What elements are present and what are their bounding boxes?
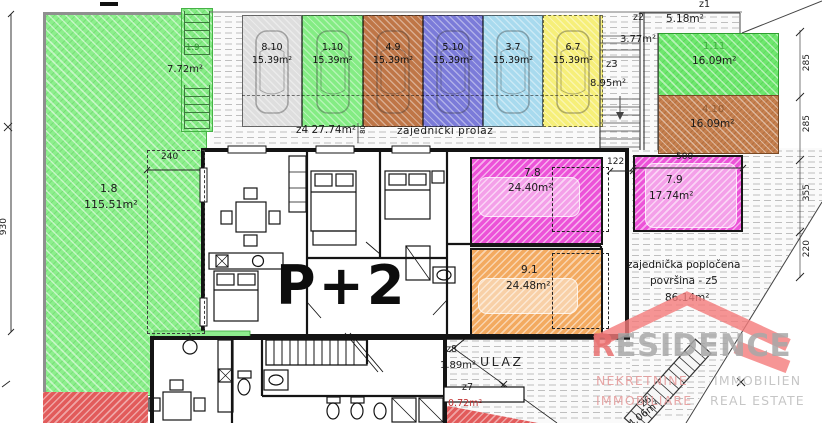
plot-4-10-id-label: 4.10 [702,104,724,115]
strip-1-9-id-label: 1.9 [186,44,200,53]
tagline-real-estate: REAL ESTATE [710,394,805,408]
z1-id-label: z1 [699,0,710,10]
dim-285b-label: 285 [803,115,813,132]
dim-500-label: 500 [676,153,693,163]
plot-1-11-id-label: 1.11 [703,41,725,52]
tagline-immobiliare: IMMOBILIARE [596,394,692,408]
terrace-7-8-id-label: 7.8 [524,168,541,180]
z3-id-label: z3 [606,59,618,70]
z8-id-label: z8 [446,345,457,355]
residence-brand: RESIDENCE [591,328,791,364]
z7-id-label: z7 [462,383,473,393]
z7-area-label: 0.72m² [448,399,482,409]
brand-initial: R [591,328,615,364]
z4-dim-label: 80 [360,125,368,134]
z2-area-label: 3.77m² [620,34,656,45]
tagline-nekretnine: NEKRETNINE [596,374,688,388]
strip-1-9-area-label: 7.72m² [167,64,203,75]
ulaz-label: ULAZ [480,355,524,369]
tagline-immobilien: IMMOBILIEN [714,374,801,388]
dim-285a-label: 285 [803,54,813,71]
plot-4-10-area-label: 16.09m² [690,119,735,131]
garden-area-label: 115.51m² [84,199,138,211]
dim-122-label: 122 [607,158,624,168]
z5-text-line1: zajednička popločena [627,260,740,272]
garden-id-label: 1.8 [100,183,118,195]
z2-id-label: z2 [633,13,644,23]
floors-p2-label: P+2 [276,256,407,315]
terrace-9-1-id-label: 9.1 [521,265,538,277]
dim-220-label: 220 [803,240,813,257]
brand-rest: ESIDENCE [615,328,791,364]
dim-240-label: 240 [161,153,178,163]
terrace-7-9-area-label: 17.74m² [649,191,694,203]
site-plan-canvas: 8.1015.39m² 1.1015.39m² 4.915.39m² 5.101… [0,0,822,423]
dim-355-label: 355 [803,184,813,201]
dim-930-label: 930 [0,218,10,235]
plot-1-11-area-label: 16.09m² [692,56,737,68]
z3-area-label: 8.95m² [590,78,626,89]
terrace-7-9-id-label: 7.9 [666,175,683,187]
terrace-9-1-area-label: 24.48m² [506,281,551,293]
z8-area-label: 1.89m² [440,360,476,371]
z1-area-label: 5.18m² [666,14,704,26]
prolaz-label: zajednički prolaz [397,126,493,138]
z4-label: z4 27.74m² [296,125,356,137]
terrace-7-8-area-label: 24.40m² [508,183,553,195]
